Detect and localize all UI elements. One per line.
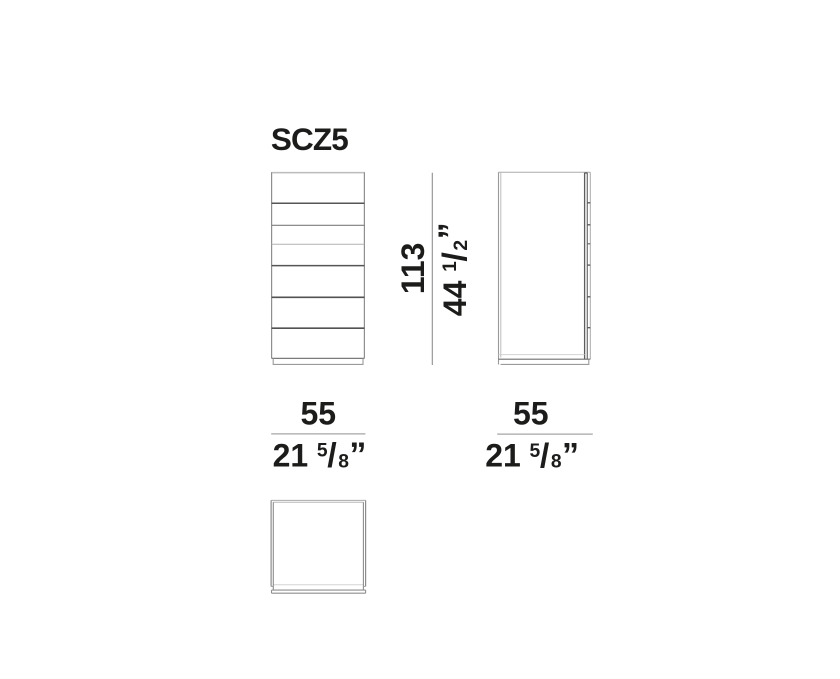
svg-text:215/8”: 215/8” — [485, 436, 579, 475]
svg-text:55: 55 — [513, 396, 549, 432]
svg-text:113: 113 — [395, 243, 431, 295]
svg-text:441/2”: 441/2” — [432, 222, 474, 316]
svg-text:SCZ5: SCZ5 — [271, 121, 348, 157]
svg-text:215/8”: 215/8” — [273, 436, 367, 475]
svg-text:55: 55 — [300, 396, 336, 432]
